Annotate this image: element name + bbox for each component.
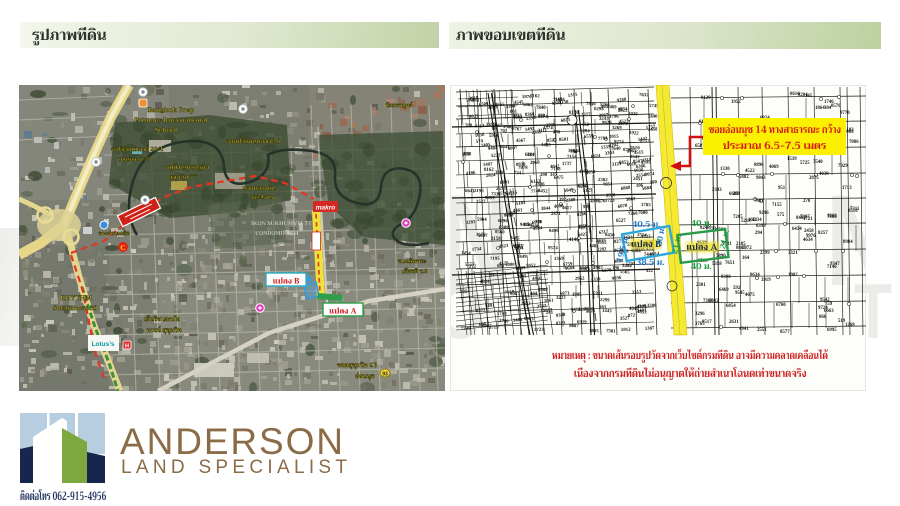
svg-text:7268: 7268 bbox=[628, 212, 638, 217]
svg-text:8807: 8807 bbox=[736, 246, 746, 251]
svg-text:4339: 4339 bbox=[591, 277, 601, 283]
svg-text:5049: 5049 bbox=[564, 188, 575, 194]
svg-text:5307: 5307 bbox=[590, 199, 600, 204]
svg-text:5358: 5358 bbox=[712, 262, 722, 267]
svg-text:T: T bbox=[854, 267, 866, 354]
svg-text:6386: 6386 bbox=[636, 164, 647, 170]
svg-text:2542: 2542 bbox=[630, 155, 640, 160]
svg-text:4594: 4594 bbox=[533, 226, 544, 232]
svg-text:6509: 6509 bbox=[479, 102, 490, 108]
svg-text:241: 241 bbox=[546, 311, 554, 316]
svg-text:6884: 6884 bbox=[525, 153, 535, 158]
svg-text:8482: 8482 bbox=[796, 216, 806, 221]
svg-text:1330: 1330 bbox=[720, 167, 730, 172]
svg-text:422: 422 bbox=[646, 269, 654, 274]
svg-text:951: 951 bbox=[778, 186, 786, 191]
svg-text:198: 198 bbox=[540, 173, 548, 178]
svg-text:9565: 9565 bbox=[495, 103, 505, 108]
svg-text:9415: 9415 bbox=[520, 222, 530, 228]
svg-text:519: 519 bbox=[838, 319, 846, 324]
svg-text:2440: 2440 bbox=[648, 114, 658, 120]
svg-text:T: T bbox=[866, 267, 892, 354]
svg-text:4522: 4522 bbox=[619, 120, 629, 125]
svg-text:3158: 3158 bbox=[491, 237, 501, 242]
svg-text:7154: 7154 bbox=[567, 155, 577, 160]
svg-text:4634: 4634 bbox=[803, 238, 813, 243]
svg-text:2060: 2060 bbox=[530, 161, 540, 166]
svg-text:1902: 1902 bbox=[788, 273, 798, 278]
svg-text:6991: 6991 bbox=[500, 180, 511, 186]
svg-text:6469: 6469 bbox=[719, 288, 729, 293]
svg-text:2631: 2631 bbox=[729, 320, 739, 325]
svg-text:4069: 4069 bbox=[769, 165, 779, 170]
svg-text:6096: 6096 bbox=[498, 219, 508, 224]
svg-text:7086: 7086 bbox=[849, 140, 859, 145]
svg-text:152: 152 bbox=[582, 123, 590, 128]
svg-text:7162: 7162 bbox=[530, 94, 540, 99]
svg-text:6399: 6399 bbox=[756, 224, 766, 229]
svg-text:4567: 4567 bbox=[516, 138, 526, 144]
svg-text:7978: 7978 bbox=[518, 166, 528, 171]
svg-text:1910: 1910 bbox=[827, 214, 837, 219]
svg-text:2667: 2667 bbox=[599, 113, 610, 119]
svg-text:2522: 2522 bbox=[476, 200, 486, 205]
svg-text:7308: 7308 bbox=[703, 299, 713, 304]
svg-text:5052: 5052 bbox=[526, 264, 536, 269]
svg-text:444: 444 bbox=[530, 292, 538, 297]
svg-text:9380: 9380 bbox=[503, 125, 513, 131]
svg-text:9574: 9574 bbox=[548, 246, 558, 251]
svg-text:2882: 2882 bbox=[593, 266, 603, 271]
svg-text:145: 145 bbox=[805, 94, 813, 99]
svg-text:7095: 7095 bbox=[517, 274, 528, 280]
svg-text:8517: 8517 bbox=[702, 320, 712, 325]
svg-text:3849: 3849 bbox=[517, 255, 527, 260]
svg-text:8087: 8087 bbox=[510, 292, 520, 297]
svg-text:1611: 1611 bbox=[748, 218, 758, 223]
svg-text:4042: 4042 bbox=[550, 164, 560, 170]
svg-text:2451: 2451 bbox=[633, 177, 643, 182]
svg-text:2706: 2706 bbox=[499, 319, 510, 325]
svg-text:1713: 1713 bbox=[842, 186, 852, 191]
svg-text:7930: 7930 bbox=[586, 102, 596, 107]
svg-text:9390: 9390 bbox=[721, 275, 731, 280]
svg-text:3844: 3844 bbox=[541, 206, 551, 212]
svg-text:1919: 1919 bbox=[761, 278, 771, 283]
svg-text:304: 304 bbox=[824, 106, 832, 111]
svg-text:9983: 9983 bbox=[524, 317, 534, 322]
svg-text:1003: 1003 bbox=[578, 225, 589, 231]
svg-text:9296: 9296 bbox=[759, 211, 769, 216]
svg-text:272: 272 bbox=[469, 264, 477, 270]
svg-text:5424: 5424 bbox=[555, 98, 565, 103]
svg-text:1737: 1737 bbox=[562, 162, 572, 167]
svg-text:7146: 7146 bbox=[827, 265, 837, 270]
svg-text:2554: 2554 bbox=[637, 233, 648, 239]
svg-text:2193: 2193 bbox=[474, 189, 484, 194]
svg-text:5954: 5954 bbox=[489, 134, 499, 139]
svg-text:4038: 4038 bbox=[819, 172, 829, 177]
svg-text:9499: 9499 bbox=[485, 196, 495, 201]
svg-text:2952: 2952 bbox=[575, 276, 585, 282]
svg-text:8985: 8985 bbox=[482, 324, 492, 329]
svg-text:2399: 2399 bbox=[760, 251, 770, 256]
svg-text:1805: 1805 bbox=[589, 329, 599, 334]
svg-text:866: 866 bbox=[819, 315, 827, 320]
svg-text:7581: 7581 bbox=[606, 329, 617, 335]
svg-text:1268: 1268 bbox=[845, 323, 855, 328]
svg-text:9928: 9928 bbox=[602, 121, 612, 126]
svg-text:7195: 7195 bbox=[490, 257, 500, 262]
svg-text:6024: 6024 bbox=[591, 154, 602, 160]
svg-text:6434: 6434 bbox=[792, 227, 802, 232]
svg-text:1539: 1539 bbox=[787, 157, 797, 162]
svg-text:3920: 3920 bbox=[606, 193, 617, 199]
svg-text:6716: 6716 bbox=[498, 191, 508, 197]
svg-text:6760: 6760 bbox=[776, 303, 786, 308]
svg-text:6527: 6527 bbox=[616, 219, 626, 224]
svg-text:8767: 8767 bbox=[512, 127, 522, 133]
svg-text:5565: 5565 bbox=[620, 270, 630, 276]
svg-text:4522: 4522 bbox=[745, 169, 755, 174]
svg-text:8490: 8490 bbox=[549, 229, 559, 234]
svg-text:5027: 5027 bbox=[478, 234, 488, 239]
svg-text:575: 575 bbox=[777, 213, 785, 218]
svg-text:4063: 4063 bbox=[516, 266, 527, 272]
svg-text:7929: 7929 bbox=[838, 164, 848, 169]
svg-text:724: 724 bbox=[514, 171, 522, 176]
svg-text:3494: 3494 bbox=[508, 211, 519, 217]
svg-text:164: 164 bbox=[742, 256, 750, 261]
svg-text:1748: 1748 bbox=[497, 312, 507, 317]
svg-text:93: 93 bbox=[382, 372, 388, 378]
svg-text:7414: 7414 bbox=[475, 124, 486, 130]
svg-text:1403: 1403 bbox=[637, 308, 648, 314]
svg-text:4545: 4545 bbox=[514, 100, 524, 106]
svg-text:1499: 1499 bbox=[541, 143, 551, 148]
svg-text:2382: 2382 bbox=[598, 178, 608, 183]
svg-text:7155: 7155 bbox=[772, 203, 782, 208]
svg-text:8054: 8054 bbox=[586, 170, 597, 176]
svg-text:3206: 3206 bbox=[647, 304, 657, 309]
svg-text:H: H bbox=[125, 344, 129, 350]
svg-text:7784: 7784 bbox=[598, 136, 609, 142]
svg-text:8162: 8162 bbox=[484, 168, 494, 173]
svg-text:3224: 3224 bbox=[579, 265, 589, 271]
svg-text:5904: 5904 bbox=[477, 218, 487, 223]
svg-text:1734: 1734 bbox=[472, 247, 483, 253]
svg-text:872: 872 bbox=[628, 313, 636, 319]
svg-text:7651: 7651 bbox=[725, 261, 735, 266]
svg-text:6857: 6857 bbox=[514, 245, 524, 250]
svg-text:5882: 5882 bbox=[739, 175, 749, 180]
svg-text:2377: 2377 bbox=[581, 113, 591, 118]
svg-text:2301: 2301 bbox=[696, 283, 706, 288]
svg-text:6319: 6319 bbox=[577, 320, 587, 326]
svg-text:3908: 3908 bbox=[495, 171, 505, 176]
svg-text:3785: 3785 bbox=[546, 123, 557, 129]
svg-text:7330: 7330 bbox=[461, 327, 471, 332]
svg-text:7600: 7600 bbox=[638, 211, 648, 216]
svg-text:7840: 7840 bbox=[536, 106, 546, 111]
svg-text:4075: 4075 bbox=[745, 293, 755, 298]
svg-text:480: 480 bbox=[553, 130, 561, 136]
svg-text:8984: 8984 bbox=[843, 240, 853, 245]
svg-text:8501: 8501 bbox=[559, 137, 569, 143]
svg-text:8170: 8170 bbox=[569, 111, 579, 116]
svg-text:5912: 5912 bbox=[621, 328, 631, 333]
svg-text:6378: 6378 bbox=[602, 268, 613, 274]
svg-text:683: 683 bbox=[497, 264, 505, 269]
svg-text:3796: 3796 bbox=[609, 115, 619, 120]
svg-text:2673: 2673 bbox=[521, 302, 531, 307]
svg-text:3033: 3033 bbox=[512, 114, 522, 119]
svg-text:6427: 6427 bbox=[578, 233, 588, 238]
svg-text:2618: 2618 bbox=[469, 96, 480, 102]
svg-text:2485: 2485 bbox=[510, 236, 521, 242]
svg-text:1369: 1369 bbox=[554, 257, 564, 262]
svg-text:5862: 5862 bbox=[523, 103, 533, 108]
svg-text:3080: 3080 bbox=[568, 149, 578, 154]
svg-text:8634: 8634 bbox=[750, 273, 760, 278]
svg-text:3469: 3469 bbox=[607, 105, 617, 111]
svg-text:3283: 3283 bbox=[466, 220, 477, 226]
svg-text:6995: 6995 bbox=[827, 328, 837, 333]
svg-text:6605: 6605 bbox=[729, 192, 739, 197]
svg-text:1061: 1061 bbox=[544, 298, 554, 304]
svg-text:100: 100 bbox=[463, 152, 471, 157]
svg-text:9545: 9545 bbox=[735, 291, 745, 296]
svg-text:196: 196 bbox=[612, 266, 620, 271]
svg-text:8874: 8874 bbox=[538, 115, 548, 120]
svg-text:1036: 1036 bbox=[628, 112, 638, 117]
svg-text:347: 347 bbox=[550, 173, 558, 178]
svg-text:Lotus’s: Lotus’s bbox=[92, 341, 115, 348]
svg-text:1723: 1723 bbox=[605, 199, 615, 204]
svg-text:1454: 1454 bbox=[461, 251, 472, 257]
svg-text:8074: 8074 bbox=[645, 172, 656, 178]
svg-text:7632: 7632 bbox=[639, 93, 649, 98]
svg-text:9843: 9843 bbox=[756, 176, 766, 181]
svg-text:4834: 4834 bbox=[480, 280, 490, 285]
svg-text:1723: 1723 bbox=[534, 328, 544, 333]
svg-text:2551: 2551 bbox=[757, 328, 767, 333]
svg-text:7311: 7311 bbox=[850, 207, 860, 212]
svg-text:9724: 9724 bbox=[818, 306, 828, 311]
svg-text:2343: 2343 bbox=[712, 188, 722, 193]
svg-text:8308: 8308 bbox=[499, 226, 509, 231]
svg-text:4466: 4466 bbox=[532, 276, 542, 282]
svg-text:294: 294 bbox=[755, 231, 763, 236]
svg-text:1387: 1387 bbox=[645, 326, 656, 332]
svg-text:1746: 1746 bbox=[824, 100, 834, 105]
svg-text:6854: 6854 bbox=[726, 304, 736, 309]
svg-text:3785: 3785 bbox=[641, 203, 651, 208]
svg-text:9974: 9974 bbox=[618, 107, 629, 113]
svg-text:708: 708 bbox=[465, 124, 473, 129]
svg-text:1080: 1080 bbox=[505, 263, 515, 268]
svg-text:4617: 4617 bbox=[562, 206, 572, 211]
svg-text:1284: 1284 bbox=[580, 129, 590, 134]
svg-text:2871: 2871 bbox=[551, 212, 561, 217]
svg-text:1491: 1491 bbox=[485, 304, 495, 309]
svg-text:4941: 4941 bbox=[739, 327, 749, 332]
svg-text:3862: 3862 bbox=[626, 197, 637, 203]
svg-text:3269: 3269 bbox=[612, 126, 622, 131]
svg-text:2419: 2419 bbox=[578, 308, 588, 313]
svg-text:4146: 4146 bbox=[569, 238, 579, 243]
svg-text:6908: 6908 bbox=[538, 288, 548, 293]
svg-text:6559: 6559 bbox=[584, 134, 595, 140]
svg-text:1952: 1952 bbox=[731, 100, 741, 105]
svg-text:1995: 1995 bbox=[572, 293, 582, 298]
svg-text:2875: 2875 bbox=[809, 176, 819, 181]
svg-text:2458: 2458 bbox=[804, 229, 814, 234]
svg-text:makro: makro bbox=[316, 205, 336, 212]
svg-text:8577: 8577 bbox=[780, 330, 790, 335]
svg-text:995: 995 bbox=[583, 205, 591, 210]
svg-text:5725: 5725 bbox=[800, 161, 810, 166]
svg-text:3296: 3296 bbox=[695, 312, 705, 317]
svg-text:118: 118 bbox=[535, 220, 543, 225]
svg-text:5321: 5321 bbox=[593, 292, 603, 297]
svg-text:8323: 8323 bbox=[556, 321, 567, 327]
svg-text:1443: 1443 bbox=[602, 309, 612, 314]
svg-text:7540: 7540 bbox=[813, 160, 823, 165]
svg-text:270: 270 bbox=[803, 199, 811, 204]
svg-text:1922: 1922 bbox=[629, 131, 640, 137]
svg-text:9770: 9770 bbox=[840, 111, 850, 116]
svg-text:3321: 3321 bbox=[788, 251, 798, 256]
svg-text:5237: 5237 bbox=[491, 154, 501, 159]
svg-text:2355: 2355 bbox=[532, 130, 543, 136]
svg-text:6153: 6153 bbox=[531, 179, 541, 185]
svg-text:C: C bbox=[120, 243, 125, 252]
svg-text:8896: 8896 bbox=[754, 163, 764, 168]
svg-text:8368: 8368 bbox=[525, 112, 535, 118]
svg-text:1483: 1483 bbox=[589, 244, 599, 250]
svg-text:3054: 3054 bbox=[460, 290, 470, 295]
svg-text:6871: 6871 bbox=[560, 291, 571, 297]
svg-text:9023: 9023 bbox=[469, 114, 479, 120]
svg-text:1752: 1752 bbox=[577, 184, 587, 189]
svg-text:9129: 9129 bbox=[701, 96, 711, 101]
svg-text:7602: 7602 bbox=[754, 199, 764, 204]
svg-text:8257: 8257 bbox=[818, 231, 828, 236]
svg-text:2299: 2299 bbox=[600, 298, 610, 304]
